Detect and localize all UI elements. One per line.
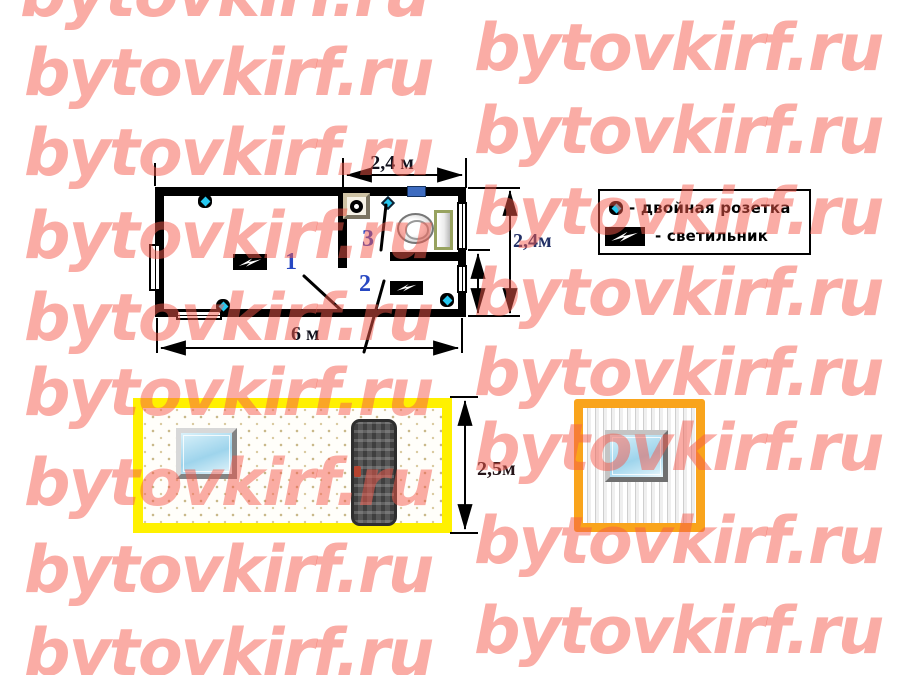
screenshot-root: 1 2 3 2,4 м 2,4м 6 м 2,5м [0, 0, 900, 675]
dimension-lines [155, 158, 520, 533]
door-swing-room3 [381, 205, 386, 250]
room-number-1: 1 [285, 250, 297, 274]
dimension-label-bottom: 6 м [291, 324, 320, 344]
door-swing-room1 [304, 276, 342, 311]
room-number-3: 3 [362, 227, 374, 251]
dimension-label-top: 2,4 м [360, 153, 424, 173]
dimension-label-elevation-height: 2,5м [477, 459, 516, 479]
dimension-label-right: 2,4м [513, 231, 552, 251]
plan-linework [0, 0, 900, 675]
room-number-2: 2 [359, 272, 371, 296]
